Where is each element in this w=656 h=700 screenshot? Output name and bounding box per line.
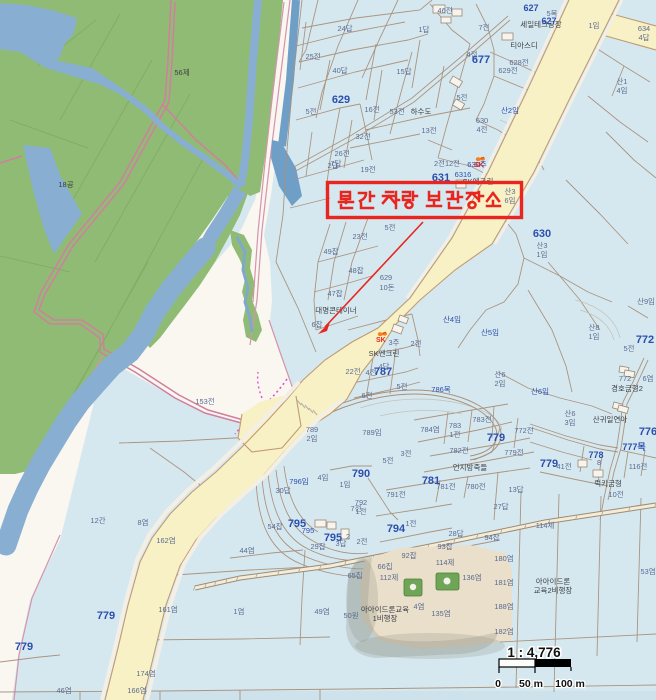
svg-text:174염: 174염 bbox=[136, 669, 155, 678]
svg-text:4전: 4전 bbox=[477, 125, 488, 134]
svg-text:114제: 114제 bbox=[536, 521, 555, 530]
svg-text:23전: 23전 bbox=[352, 232, 367, 241]
svg-text:48잡: 48잡 bbox=[348, 266, 363, 275]
svg-text:32전: 32전 bbox=[355, 132, 370, 141]
svg-text:784염: 784염 bbox=[420, 425, 439, 434]
svg-text:언지방죽들: 언지방죽들 bbox=[453, 462, 488, 472]
svg-text:2전12전: 2전12전 bbox=[434, 159, 460, 168]
svg-text:136염: 136염 bbox=[462, 573, 481, 582]
svg-text:3주: 3주 bbox=[389, 338, 400, 347]
svg-text:5전: 5전 bbox=[383, 456, 394, 465]
svg-text:1임: 1임 bbox=[537, 250, 548, 259]
svg-text:3임: 3임 bbox=[565, 418, 576, 427]
svg-text:677: 677 bbox=[472, 54, 490, 66]
svg-text:153전: 153전 bbox=[195, 397, 214, 406]
svg-text:790: 790 bbox=[352, 468, 370, 480]
svg-text:56제: 56제 bbox=[174, 68, 189, 77]
svg-text:166염: 166염 bbox=[127, 686, 146, 695]
svg-text:18공: 18공 bbox=[58, 180, 73, 189]
svg-text:1답: 1답 bbox=[419, 25, 430, 34]
svg-text:13전: 13전 bbox=[421, 126, 436, 135]
svg-text:47잡: 47잡 bbox=[327, 289, 342, 298]
svg-text:6임: 6임 bbox=[505, 196, 516, 205]
svg-text:10전: 10전 bbox=[608, 490, 623, 499]
svg-text:4염: 4염 bbox=[414, 602, 425, 611]
svg-text:114제: 114제 bbox=[436, 558, 455, 567]
svg-text:634: 634 bbox=[638, 24, 650, 33]
svg-text:787: 787 bbox=[374, 366, 392, 378]
svg-text:27답: 27답 bbox=[493, 502, 508, 511]
svg-text:5전: 5전 bbox=[385, 223, 396, 232]
svg-text:629전: 629전 bbox=[498, 66, 517, 75]
svg-text:6잡: 6잡 bbox=[312, 320, 323, 329]
svg-text:대명콘테이너: 대명콘테이너 bbox=[315, 305, 356, 315]
svg-text:776: 776 bbox=[639, 426, 656, 438]
svg-text:산5임: 산5임 bbox=[481, 327, 499, 337]
svg-text:아아이드론: 아아이드론 bbox=[536, 576, 571, 586]
svg-text:779: 779 bbox=[97, 610, 115, 622]
svg-text:65집: 65집 bbox=[347, 571, 362, 580]
svg-text:44염: 44염 bbox=[239, 546, 254, 555]
svg-text:188염: 188염 bbox=[494, 602, 513, 611]
svg-text:627: 627 bbox=[541, 16, 556, 26]
svg-text:181염: 181염 bbox=[494, 578, 513, 587]
svg-text:94잡: 94잡 bbox=[484, 533, 499, 542]
svg-text:5전: 5전 bbox=[624, 344, 635, 353]
svg-text:산3: 산3 bbox=[505, 187, 516, 196]
svg-text:29잡: 29잡 bbox=[310, 542, 325, 551]
svg-text:630: 630 bbox=[533, 228, 551, 240]
svg-text:54잡: 54잡 bbox=[267, 522, 282, 531]
svg-text:780전: 780전 bbox=[466, 482, 485, 491]
svg-text:779: 779 bbox=[15, 641, 33, 653]
svg-text:794: 794 bbox=[387, 523, 406, 535]
svg-text:2: 2 bbox=[346, 532, 350, 541]
svg-text:4임: 4임 bbox=[617, 86, 628, 95]
svg-text:1염: 1염 bbox=[234, 607, 245, 616]
svg-text:하수도: 하수도 bbox=[411, 106, 432, 116]
svg-text:50원: 50원 bbox=[343, 611, 358, 620]
svg-text:1임: 1임 bbox=[589, 332, 600, 341]
svg-text:19전: 19전 bbox=[360, 165, 375, 174]
svg-text:28답: 28답 bbox=[448, 529, 463, 538]
svg-text:1임: 1임 bbox=[589, 21, 600, 30]
svg-text:5전: 5전 bbox=[457, 93, 468, 102]
svg-text:789: 789 bbox=[306, 425, 318, 434]
svg-text:산9임: 산9임 bbox=[637, 297, 655, 306]
svg-text:49잡: 49잡 bbox=[323, 247, 338, 256]
svg-text:16전: 16전 bbox=[364, 105, 379, 114]
svg-text:8: 8 bbox=[597, 458, 601, 467]
svg-text:10돈: 10돈 bbox=[379, 283, 394, 292]
svg-text:산3: 산3 bbox=[537, 241, 548, 250]
svg-text:112제: 112제 bbox=[380, 573, 399, 582]
svg-text:629: 629 bbox=[380, 273, 392, 282]
svg-text:630: 630 bbox=[476, 116, 488, 125]
svg-text:795: 795 bbox=[302, 526, 315, 535]
svg-text:산6: 산6 bbox=[565, 409, 576, 418]
svg-text:8염: 8염 bbox=[138, 518, 149, 527]
svg-text:161염: 161염 bbox=[158, 605, 177, 614]
svg-text:22전: 22전 bbox=[345, 367, 360, 376]
svg-text:12간: 12간 bbox=[90, 516, 105, 525]
svg-text:산8: 산8 bbox=[589, 323, 600, 332]
svg-text:26전: 26전 bbox=[334, 149, 349, 158]
svg-text:SK엔크린: SK엔크린 bbox=[369, 348, 400, 358]
svg-text:7전: 7전 bbox=[479, 23, 490, 32]
svg-text:100 m: 100 m bbox=[555, 678, 585, 690]
svg-text:15답: 15답 bbox=[396, 67, 411, 76]
svg-text:6전: 6전 bbox=[362, 391, 373, 400]
svg-text:93잡: 93잡 bbox=[437, 542, 452, 551]
svg-text:2임: 2임 bbox=[307, 434, 318, 443]
svg-text:1비행장: 1비행장 bbox=[373, 613, 398, 623]
svg-text:5전: 5전 bbox=[397, 382, 408, 391]
svg-text:2전: 2전 bbox=[411, 339, 422, 348]
svg-text:182염: 182염 bbox=[494, 627, 513, 636]
svg-text:13답: 13답 bbox=[508, 485, 523, 494]
svg-text:2전: 2전 bbox=[357, 537, 368, 546]
svg-text:경호금형2: 경호금형2 bbox=[611, 383, 643, 393]
svg-text:781전: 781전 bbox=[436, 482, 455, 491]
svg-text:782전: 782전 bbox=[449, 446, 468, 455]
svg-text:116전: 116전 bbox=[629, 462, 648, 471]
svg-text:777목: 777목 bbox=[622, 442, 645, 452]
svg-text:7전: 7전 bbox=[351, 504, 362, 513]
svg-text:162염: 162염 bbox=[156, 536, 175, 545]
svg-text:1전: 1전 bbox=[406, 519, 417, 528]
svg-text:산6임: 산6임 bbox=[531, 386, 549, 396]
svg-text:49염: 49염 bbox=[314, 607, 329, 616]
svg-text:30답: 30답 bbox=[275, 486, 290, 495]
svg-text:783: 783 bbox=[449, 421, 461, 430]
svg-text:779: 779 bbox=[487, 432, 505, 444]
svg-text:산6: 산6 bbox=[495, 370, 506, 379]
svg-text:53염: 53염 bbox=[640, 567, 655, 576]
svg-text:135염: 135염 bbox=[431, 609, 450, 618]
svg-text:24답: 24답 bbox=[337, 24, 352, 33]
svg-text:779전: 779전 bbox=[504, 448, 523, 457]
svg-text:산4임: 산4임 bbox=[443, 314, 461, 324]
svg-text:5전: 5전 bbox=[306, 107, 317, 116]
svg-text:66집: 66집 bbox=[377, 562, 392, 571]
svg-text:50 m: 50 m bbox=[519, 678, 543, 690]
svg-text:46염: 46염 bbox=[56, 686, 71, 695]
svg-text:791전: 791전 bbox=[386, 490, 405, 499]
svg-text:772전: 772전 bbox=[514, 426, 533, 435]
svg-text:41전: 41전 bbox=[556, 462, 571, 471]
svg-text:2답: 2답 bbox=[328, 161, 339, 170]
svg-text:산1: 산1 bbox=[617, 77, 628, 86]
svg-text:산귀일연아: 산귀일연아 bbox=[593, 414, 628, 424]
svg-text:4전: 4전 bbox=[366, 368, 377, 377]
svg-text:25전: 25전 bbox=[305, 52, 320, 61]
svg-text:46전: 46전 bbox=[437, 6, 452, 15]
svg-text:789임: 789임 bbox=[362, 428, 381, 437]
svg-text:4임: 4임 bbox=[318, 473, 329, 482]
svg-text:627: 627 bbox=[523, 3, 538, 13]
svg-text:1전: 1전 bbox=[450, 430, 461, 439]
svg-text:772: 772 bbox=[619, 374, 631, 383]
svg-text:53전: 53전 bbox=[389, 107, 404, 116]
svg-text:786목: 786목 bbox=[431, 385, 451, 394]
svg-text:629: 629 bbox=[332, 94, 350, 106]
svg-text:2임: 2임 bbox=[495, 379, 506, 388]
svg-text:772: 772 bbox=[636, 334, 654, 346]
svg-text:40답: 40답 bbox=[332, 66, 347, 75]
svg-text:럭키금형: 럭키금형 bbox=[594, 479, 622, 488]
svg-text:교육2비행장: 교육2비행장 bbox=[534, 585, 573, 595]
svg-text:4답: 4답 bbox=[639, 33, 650, 42]
svg-text:1임: 1임 bbox=[340, 480, 351, 489]
svg-text:783전: 783전 bbox=[472, 415, 491, 424]
svg-text:0: 0 bbox=[495, 678, 501, 690]
svg-text:산2임: 산2임 bbox=[501, 105, 519, 115]
svg-text:3전: 3전 bbox=[401, 449, 412, 458]
svg-text:779: 779 bbox=[540, 458, 558, 470]
svg-text:SK: SK bbox=[474, 162, 484, 169]
svg-text:6염: 6염 bbox=[643, 374, 654, 383]
svg-text:아아이드론교육: 아아이드론교육 bbox=[361, 604, 409, 614]
svg-text:180염: 180염 bbox=[494, 554, 513, 563]
svg-text:796임: 796임 bbox=[289, 477, 308, 486]
svg-text:SK: SK bbox=[376, 337, 386, 344]
svg-text:92잡: 92잡 bbox=[401, 551, 416, 560]
svg-text:1 : 4,776: 1 : 4,776 bbox=[507, 645, 561, 660]
svg-text:티아스디: 티아스디 bbox=[510, 40, 538, 50]
